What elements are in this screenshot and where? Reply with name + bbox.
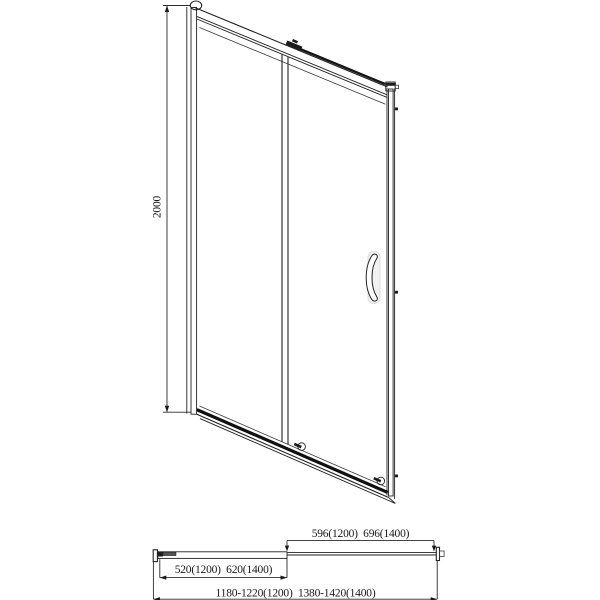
slide-width-dimension: 520(1200) 620(1400) <box>160 558 287 579</box>
bottom-rail-edge <box>197 414 389 497</box>
top-view: 596(1200) 696(1400) 520(1200) 620(1400) … <box>153 528 444 600</box>
right-post <box>385 82 398 499</box>
rail-top-edge <box>194 7 388 87</box>
door-handle <box>366 252 380 304</box>
roller-bracket <box>294 444 301 447</box>
wall-profile-plan <box>158 552 164 557</box>
bracket-plan <box>163 552 176 555</box>
panel-width-dimension: 596(1200) 696(1400) <box>285 528 436 551</box>
track-bar <box>153 547 444 561</box>
roller-bracket <box>374 478 381 481</box>
rail-line-2 <box>197 16 387 94</box>
track-end-cap <box>385 83 396 86</box>
left-end-cap <box>153 550 157 562</box>
left-post <box>191 8 197 415</box>
right-post-body <box>389 89 394 496</box>
front-view: 2000 <box>152 1 399 503</box>
center-mullion <box>282 54 288 444</box>
arrow-down-icon <box>432 546 436 552</box>
bottom-rail-profile <box>197 410 388 493</box>
right-end-cap <box>436 547 439 560</box>
top-roller-bracket <box>287 43 302 49</box>
sliding-shower-door-drawing: 2000 <box>0 0 600 600</box>
slide-width-label: 520(1200) 620(1400) <box>175 564 273 576</box>
arrow-down-icon <box>165 406 169 413</box>
glass-bottom-edge <box>200 406 386 487</box>
left-wall-profile <box>187 1 202 414</box>
right-end-tick <box>440 551 445 556</box>
top-roller-tab <box>293 40 298 42</box>
sliding-panel-top-profile <box>288 44 385 84</box>
overall-width-label: 1180-1220(1200) 1380-1420(1400) <box>216 587 376 599</box>
height-dimension-label: 2000 <box>152 195 164 218</box>
arrow-down-icon <box>285 546 289 552</box>
arrow-left-icon <box>160 576 167 580</box>
screw-bottom <box>395 475 398 478</box>
arrow-right-icon <box>281 576 288 580</box>
rail-line-3 <box>197 19 387 97</box>
glass-top-edge <box>200 28 386 105</box>
screw-top <box>395 108 398 111</box>
panel-width-label: 596(1200) 696(1400) <box>312 528 410 540</box>
height-dimension: 2000 <box>152 6 191 413</box>
screw-middle <box>395 291 398 294</box>
sliding-panel-plan <box>158 552 287 559</box>
technical-drawing-canvas: 2000 <box>0 0 600 600</box>
bottom-rail-depth-line <box>200 419 395 504</box>
top-rail <box>194 7 388 104</box>
bottom-rail <box>197 406 395 503</box>
arrow-up-icon <box>165 6 169 13</box>
